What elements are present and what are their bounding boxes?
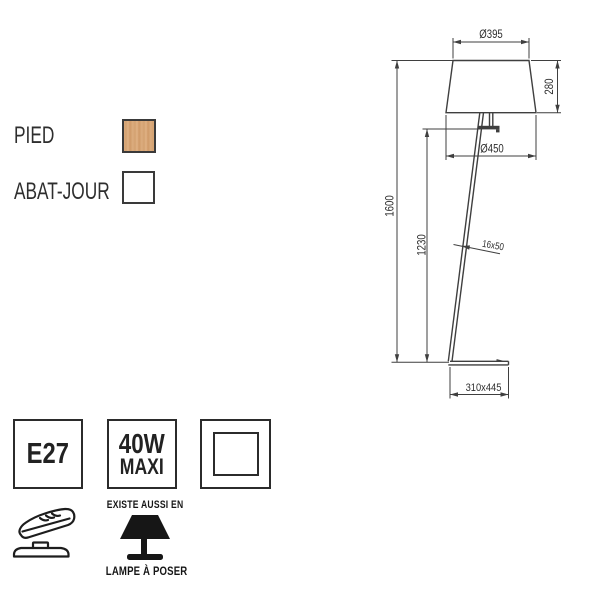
also-available-title: EXISTE AUSSI EN	[107, 499, 183, 511]
shape-spec-box	[200, 419, 271, 489]
lampshade-outline	[446, 61, 536, 113]
svg-text:310x445: 310x445	[466, 382, 502, 394]
lamp-outline	[446, 61, 536, 365]
abat-jour-label: ABAT-JOUR	[14, 180, 110, 204]
svg-text:Ø395: Ø395	[479, 28, 502, 41]
base-plate	[448, 360, 508, 365]
dim-shade-bottom-diameter: Ø450	[446, 115, 536, 160]
also-available-section: EXISTE AUSSI EN LAMPE À POSER	[96, 499, 194, 578]
dimension-arrows	[395, 40, 560, 397]
abat-jour-white-swatch	[122, 171, 155, 204]
square-shape-icon	[213, 432, 259, 476]
table-lamp-label: LAMPE À POSER	[106, 564, 184, 578]
foot-switch-icon	[12, 505, 78, 563]
pied-label: PIED	[14, 124, 54, 148]
wattage-spec-box: 40W MAXI	[107, 419, 177, 489]
floor-lamp-technical-drawing: Ø395 280 Ø450 1600 1230	[380, 15, 600, 415]
dim-total-height: 1600	[384, 61, 453, 363]
pied-wood-swatch	[122, 119, 156, 153]
callout-pole-section: 16x50	[454, 238, 505, 254]
dim-shade-top-diameter: Ø395	[453, 28, 529, 58]
dim-base-size: 310x445	[450, 367, 509, 399]
svg-text:Ø450: Ø450	[480, 143, 503, 156]
svg-text:1600: 1600	[384, 195, 397, 216]
socket-type-label: E27	[27, 438, 69, 471]
wattage-maxi-label: MAXI	[119, 457, 165, 477]
product-spec-sheet: PIED ABAT-JOUR	[0, 0, 600, 600]
slanted-pole	[448, 113, 483, 362]
socket-spec-box: E27	[13, 419, 83, 489]
table-lamp-icon	[119, 514, 171, 561]
svg-text:280: 280	[543, 79, 556, 95]
svg-text:1230: 1230	[416, 234, 429, 255]
